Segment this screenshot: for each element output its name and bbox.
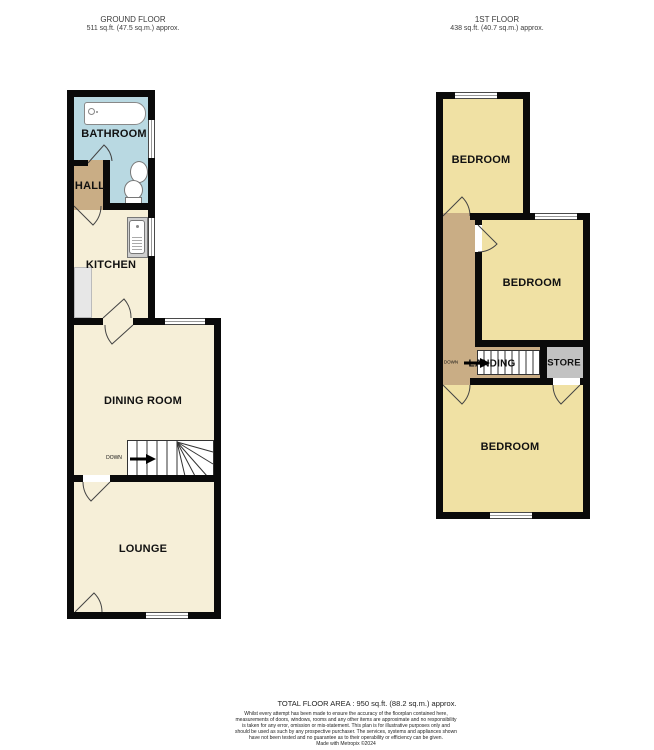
floorplan-first: BEDROOM BEDROOM BEDROOM LANDING STORE DO… xyxy=(430,88,596,526)
first-stairs-arrow xyxy=(430,88,596,526)
first-floor-title: 1ST FLOOR xyxy=(397,15,597,24)
disclaimer-text: Whilst every attempt has been made to en… xyxy=(235,711,457,741)
ground-floor-title: GROUND FLOOR xyxy=(33,15,233,24)
ground-floor-area: 511 sq.ft. (47.5 sq.m.) approx. xyxy=(33,24,233,33)
down-arrow-icon xyxy=(146,454,156,464)
first-floor-area: 438 sq.ft. (40.7 sq.m.) approx. xyxy=(397,24,597,33)
credit-text: Made with Metropix ©2024 xyxy=(235,741,457,747)
floorplan-page: GROUND FLOOR 511 sq.ft. (47.5 sq.m.) app… xyxy=(0,0,654,750)
first-floor-header: 1ST FLOOR 438 sq.ft. (40.7 sq.m.) approx… xyxy=(397,15,597,33)
ground-floor-header: GROUND FLOOR 511 sq.ft. (47.5 sq.m.) app… xyxy=(33,15,233,33)
ground-stairs-arrow xyxy=(60,88,228,626)
down-arrow-icon xyxy=(480,358,490,368)
floorplan-ground: BATHROOM HALL KITCHEN DINING ROOM LOUNGE… xyxy=(60,88,228,626)
total-floor-area: TOTAL FLOOR AREA : 950 sq.ft. (88.2 sq.m… xyxy=(227,699,507,708)
